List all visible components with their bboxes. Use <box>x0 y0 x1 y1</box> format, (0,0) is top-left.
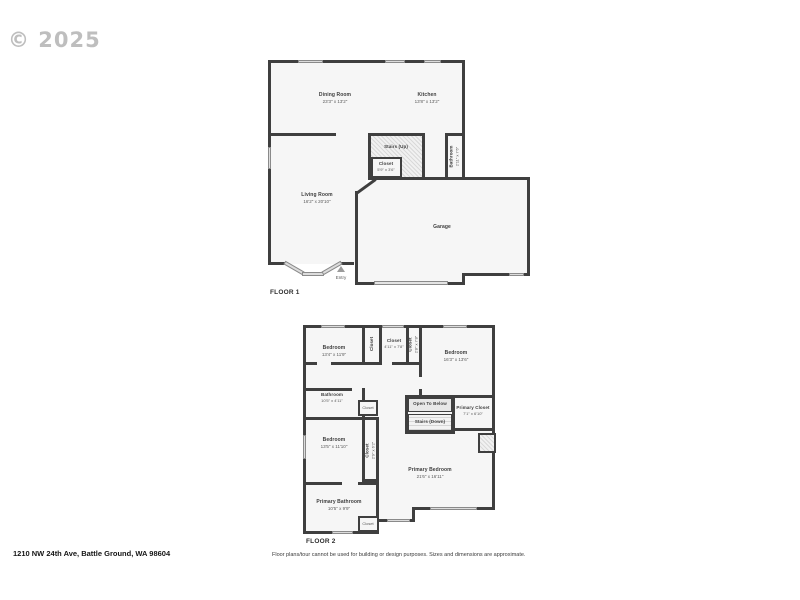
room-name: Stairs (Up) <box>366 144 426 150</box>
garage-door <box>374 281 448 285</box>
disclaimer-text: Floor plans/tour cannot be used for buil… <box>272 552 525 558</box>
room-dims: 13'5" x 11'10" <box>299 444 369 450</box>
window <box>509 273 524 276</box>
room-dims: 10'5" x 9'9" <box>299 506 379 512</box>
entry-arrow-icon <box>337 266 345 272</box>
room-name: Garage <box>402 224 482 231</box>
wall <box>462 60 465 180</box>
window <box>268 147 271 169</box>
room-dims: 13'8" x 13'2" <box>387 99 467 105</box>
room-dims: 16'2" x 20'10" <box>277 199 357 205</box>
room-label-dining: Dining Room 23'3" x 13'2" <box>295 92 375 104</box>
room-label-bathroom-f2: Bathroom 10'5" x 4'11" <box>302 392 362 403</box>
floor2-tag: FLOOR 2 <box>306 538 336 545</box>
room-label-entry: Entry <box>326 275 356 281</box>
wall <box>358 482 379 485</box>
room-label-garage: Garage <box>402 224 482 231</box>
room-fill-kitchen-walkway <box>425 135 447 180</box>
property-address: 1210 NW 24th Ave, Battle Ground, WA 9860… <box>13 549 170 558</box>
room-dims: 2'11" x 7'6" <box>454 135 459 179</box>
room-label-kitchen: Kitchen 13'8" x 13'2" <box>387 92 467 104</box>
room-dims: 21'6" x 16'11" <box>390 474 470 480</box>
room-name: Closet <box>353 405 383 410</box>
bay-window-center <box>302 272 324 276</box>
room-name: Stairs (Down) <box>405 419 455 425</box>
room-label-bedroom-ne: Bedroom 16'3" x 13'6" <box>421 350 491 362</box>
room-name: Entry <box>326 275 356 281</box>
room-label-bedroom-sw: Bedroom 13'5" x 11'10" <box>299 437 369 449</box>
wall <box>405 431 455 434</box>
room-label-closet-e: Closet 2'8" x 7'8" <box>407 325 418 365</box>
room-label-living: Living Room 16'2" x 20'10" <box>277 192 357 204</box>
wall <box>303 482 342 485</box>
copyright-watermark: © 2025 <box>8 28 101 52</box>
floor1-tag: FLOOR 1 <box>270 289 300 296</box>
room-dims: 2'9" x 6'2" <box>370 431 375 471</box>
room-dims: 13'4" x 11'9" <box>299 352 369 358</box>
window <box>443 325 467 328</box>
room-dims: 16'3" x 13'6" <box>421 357 491 363</box>
room-name: Closet <box>353 521 383 526</box>
room-fill-garage <box>357 180 527 283</box>
room-label-closet-s: Closet <box>353 521 383 526</box>
wall <box>268 133 336 136</box>
window <box>382 325 404 328</box>
room-label-primary-bathroom: Primary Bathroom 10'5" x 9'9" <box>299 499 379 511</box>
window <box>321 325 345 328</box>
wall <box>527 177 530 276</box>
floor-plan-page: © 2025 <box>0 0 800 600</box>
wall <box>303 417 379 420</box>
room-dims: 23'3" x 13'2" <box>295 99 375 105</box>
room-label-bedroom-nw: Bedroom 13'4" x 11'9" <box>299 345 369 357</box>
window <box>298 60 323 63</box>
window <box>332 531 353 534</box>
wall <box>303 388 352 391</box>
room-dims: 5'9" x 3'6" <box>361 167 411 172</box>
wall <box>355 191 358 285</box>
room-label-stairs-up: Stairs (Up) <box>366 144 426 150</box>
chimney-chase-box <box>478 433 496 453</box>
room-dims: 2'8" x 7'8" <box>413 325 418 365</box>
window <box>430 507 477 510</box>
wall <box>492 325 495 510</box>
room-label-stairs-down: Stairs (Down) <box>405 419 455 425</box>
room-label-closet-f1: Closet 5'9" x 3'6" <box>361 161 411 172</box>
window <box>424 60 441 63</box>
room-fill-hall <box>333 135 371 180</box>
window <box>385 60 405 63</box>
wall <box>452 428 495 431</box>
room-dims: 7'1" x 6'10" <box>448 411 498 416</box>
room-label-closet-hall: Closet <box>353 405 383 410</box>
room-label-bathroom-f1: Bathroom 2'11" x 7'6" <box>448 135 459 179</box>
wall <box>303 362 317 365</box>
room-dims: 10'5" x 4'11" <box>302 398 362 403</box>
room-label-primary-closet: Primary Closet 7'1" x 6'10" <box>448 405 498 416</box>
room-label-closet-sw: Closet 2'9" x 6'2" <box>364 431 375 471</box>
window <box>387 519 410 522</box>
room-label-primary-bedroom: Primary Bedroom 21'6" x 16'11" <box>390 467 470 479</box>
